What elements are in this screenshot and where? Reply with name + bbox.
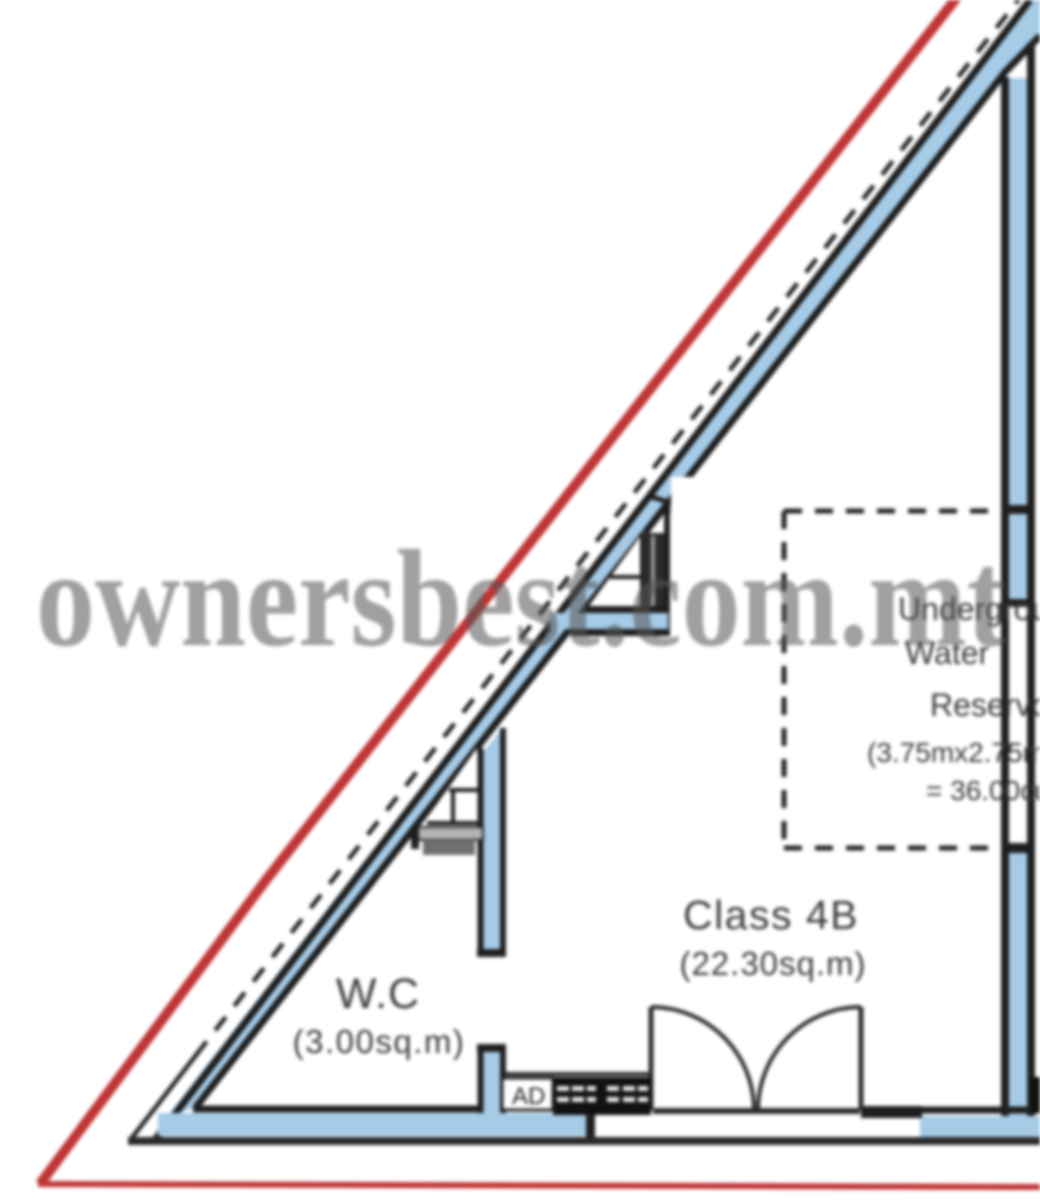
svg-text:(3.00sq.m): (3.00sq.m)	[293, 1023, 466, 1060]
svg-text:Class 4B: Class 4B	[683, 892, 859, 938]
svg-text:ownersbest.com.mt: ownersbest.com.mt	[36, 522, 1006, 676]
svg-text:Reservoir: Reservoir	[930, 687, 1040, 723]
svg-text:(22.30sq.m): (22.30sq.m)	[679, 945, 866, 982]
svg-text:= 36.00cu.m: = 36.00cu.m	[926, 775, 1040, 806]
svg-text:AD: AD	[512, 1083, 545, 1110]
svg-text:(3.75mx2.75m): (3.75mx2.75m)	[867, 737, 1040, 768]
svg-text:W.C: W.C	[336, 970, 420, 1018]
